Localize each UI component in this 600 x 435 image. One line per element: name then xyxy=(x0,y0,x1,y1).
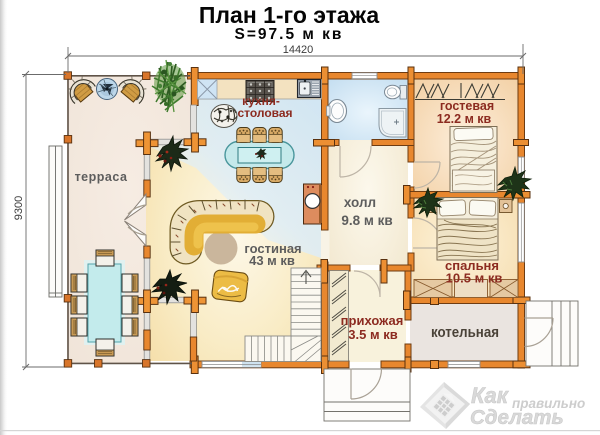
svg-text:гостевая: гостевая xyxy=(440,99,494,113)
svg-text:S=97.5 м кв: S=97.5 м кв xyxy=(235,26,344,43)
svg-text:столовая: столовая xyxy=(237,106,292,120)
svg-text:10.5 м кв: 10.5 м кв xyxy=(446,271,503,286)
svg-text:43 м кв: 43 м кв xyxy=(249,253,295,268)
svg-text:9300: 9300 xyxy=(13,196,25,220)
svg-text:9.8 м кв: 9.8 м кв xyxy=(341,213,392,228)
svg-text:Как: Как xyxy=(471,383,510,408)
svg-text:терраса: терраса xyxy=(75,170,128,184)
svg-text:План 1-го этажа: План 1-го этажа xyxy=(199,2,379,28)
svg-text:14420: 14420 xyxy=(283,44,314,56)
svg-text:холл: холл xyxy=(344,195,376,210)
svg-text:3.5 м кв: 3.5 м кв xyxy=(348,327,397,342)
svg-text:12.2 м кв: 12.2 м кв xyxy=(437,112,492,126)
svg-text:прихожая: прихожая xyxy=(341,313,404,328)
svg-text:котельная: котельная xyxy=(431,325,499,341)
svg-text:Сделать: Сделать xyxy=(470,406,564,429)
